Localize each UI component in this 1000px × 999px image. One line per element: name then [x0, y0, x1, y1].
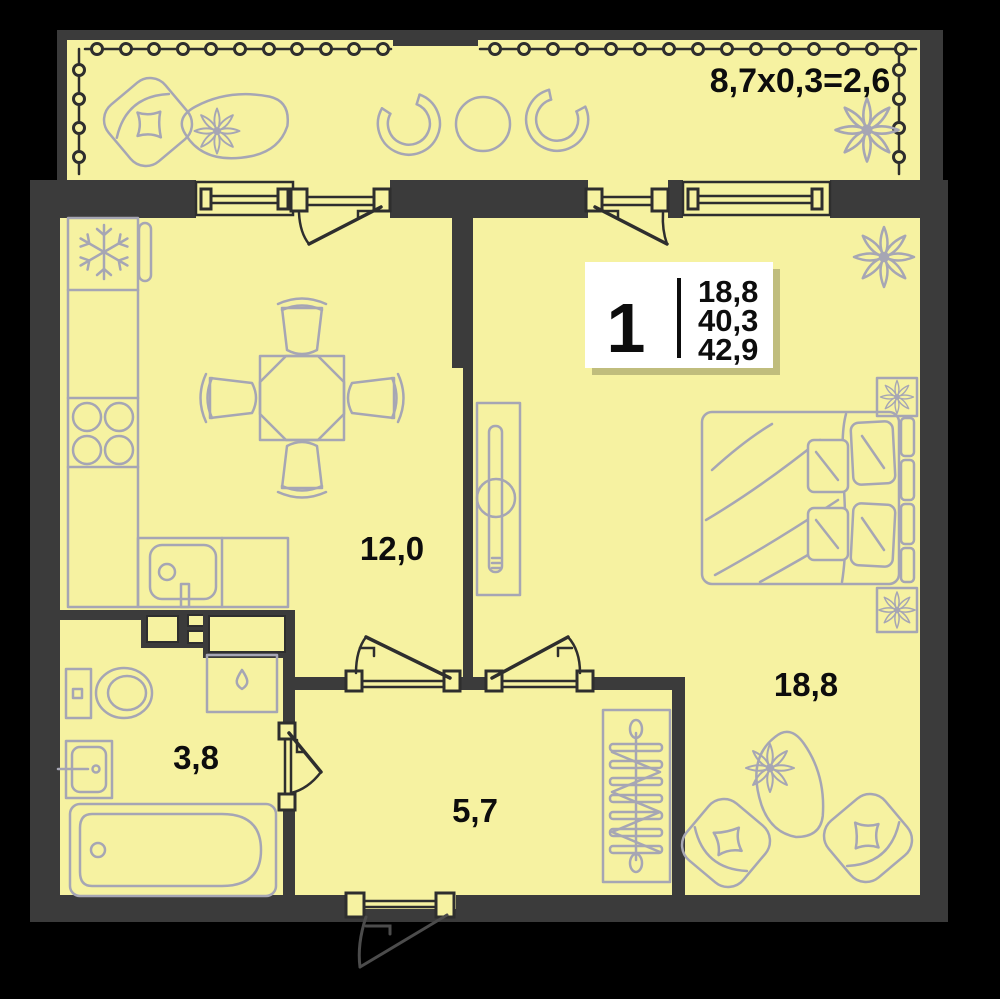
window-bedroom: [683, 182, 830, 215]
window-kitchen: [196, 182, 293, 215]
info-badge: 1 18,8 40,3 42,9: [585, 262, 780, 375]
bathroom-area-label: 3,8: [173, 739, 219, 776]
floor-plan-image: 8,7x0,3=2,6 12,0 18,8 3,8 5,7 1 18,8 40,…: [0, 0, 1000, 999]
kitchen-area-label: 12,0: [360, 530, 424, 567]
badge-divider: [677, 278, 681, 358]
floor-plan-svg: 8,7x0,3=2,6 12,0 18,8 3,8 5,7 1 18,8 40,…: [0, 0, 1000, 999]
niche: [209, 616, 285, 652]
hallway-area-label: 5,7: [452, 792, 498, 829]
balcony-floor: [67, 38, 923, 180]
room-count: 1: [607, 289, 646, 367]
duct-shaft: [147, 616, 178, 642]
bedroom-area-label: 18,8: [774, 666, 838, 703]
badge-area-3: 42,9: [698, 332, 758, 367]
balcony-dimension-label: 8,7x0,3=2,6: [710, 62, 891, 100]
